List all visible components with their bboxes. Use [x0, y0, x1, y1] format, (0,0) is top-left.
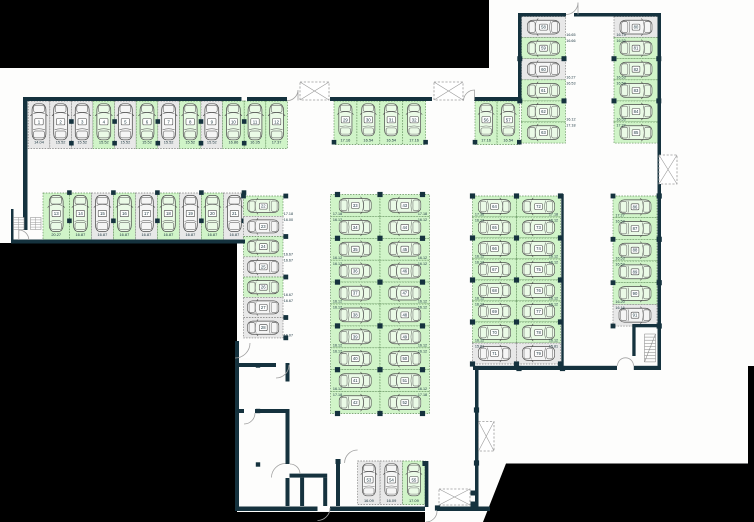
svg-text:53: 53	[366, 477, 371, 482]
svg-text:67: 67	[492, 267, 497, 272]
svg-text:16.12: 16.12	[549, 339, 558, 343]
svg-text:42: 42	[353, 400, 358, 405]
svg-text:17.27: 17.27	[615, 213, 624, 217]
svg-text:16.12: 16.12	[549, 297, 558, 301]
svg-text:64: 64	[492, 204, 497, 209]
svg-text:38: 38	[353, 312, 358, 317]
svg-text:19: 19	[188, 211, 193, 216]
svg-text:87: 87	[633, 226, 638, 231]
svg-text:16.12: 16.12	[418, 262, 427, 266]
svg-text:16.12: 16.12	[475, 261, 484, 265]
svg-text:17.18: 17.18	[333, 212, 342, 216]
svg-text:16.12: 16.12	[418, 306, 427, 310]
svg-text:16.00: 16.00	[284, 218, 293, 222]
svg-text:16.67: 16.67	[284, 299, 293, 303]
svg-text:91: 91	[633, 313, 638, 318]
svg-text:16.12: 16.12	[333, 306, 342, 310]
svg-text:40: 40	[353, 356, 358, 361]
svg-text:15.81: 15.81	[475, 345, 484, 349]
svg-text:13: 13	[54, 211, 59, 216]
svg-text:47: 47	[402, 291, 407, 296]
svg-text:17.37: 17.37	[272, 140, 282, 145]
svg-text:49: 49	[402, 334, 407, 339]
svg-text:16.12: 16.12	[418, 343, 427, 347]
svg-text:14.04: 14.04	[34, 140, 45, 145]
svg-text:89: 89	[633, 269, 638, 274]
svg-text:57: 57	[506, 117, 511, 122]
svg-text:16.12: 16.12	[333, 262, 342, 266]
svg-text:33: 33	[353, 203, 358, 208]
svg-text:16.53: 16.53	[616, 75, 625, 79]
svg-text:17: 17	[144, 211, 149, 216]
svg-text:29: 29	[343, 117, 348, 122]
svg-text:16.54: 16.54	[363, 138, 374, 143]
svg-text:16.27: 16.27	[566, 75, 575, 79]
svg-text:61: 61	[541, 88, 546, 93]
svg-text:17.18: 17.18	[284, 212, 293, 216]
svg-text:16.53: 16.53	[615, 219, 624, 223]
svg-text:16.53: 16.53	[616, 39, 625, 43]
svg-text:43: 43	[402, 203, 407, 208]
svg-text:78: 78	[536, 330, 541, 335]
svg-text:16.67: 16.67	[284, 252, 293, 256]
svg-text:34: 34	[353, 225, 358, 230]
svg-text:17.18: 17.18	[333, 393, 342, 397]
svg-text:16.53: 16.53	[616, 81, 625, 85]
svg-text:55: 55	[411, 477, 416, 482]
svg-text:16.12: 16.12	[549, 261, 558, 265]
svg-text:16.67: 16.67	[284, 293, 293, 297]
svg-text:90: 90	[633, 291, 638, 296]
svg-text:85: 85	[634, 130, 639, 135]
svg-text:16: 16	[122, 211, 127, 216]
svg-text:17.18: 17.18	[566, 124, 575, 128]
svg-text:51: 51	[402, 378, 407, 383]
svg-text:88: 88	[633, 248, 638, 253]
svg-text:16.53: 16.53	[616, 118, 625, 122]
svg-text:16.12: 16.12	[475, 255, 484, 259]
svg-text:70: 70	[492, 330, 497, 335]
svg-text:15.52: 15.52	[207, 140, 217, 145]
svg-text:14: 14	[78, 211, 83, 216]
svg-text:16.12: 16.12	[333, 218, 342, 222]
svg-text:15.52: 15.52	[121, 140, 131, 145]
svg-text:16.12: 16.12	[475, 339, 484, 343]
svg-text:16.09: 16.09	[364, 498, 374, 503]
svg-text:54: 54	[389, 477, 394, 482]
svg-text:81: 81	[634, 46, 639, 51]
svg-text:16.87: 16.87	[208, 232, 218, 237]
svg-text:31: 31	[389, 117, 394, 122]
svg-text:16.12: 16.12	[475, 219, 484, 223]
svg-text:72: 72	[536, 204, 541, 209]
svg-text:50: 50	[402, 356, 407, 361]
svg-text:17.18: 17.18	[418, 212, 427, 216]
svg-text:48: 48	[402, 312, 407, 317]
svg-text:16.12: 16.12	[418, 256, 427, 260]
svg-text:16.12: 16.12	[549, 219, 558, 223]
svg-text:56: 56	[484, 117, 489, 122]
svg-text:15.52: 15.52	[142, 140, 152, 145]
svg-text:11: 11	[253, 119, 258, 124]
svg-text:16.87: 16.87	[120, 232, 130, 237]
svg-text:62: 62	[541, 109, 546, 114]
svg-text:79: 79	[536, 351, 541, 356]
svg-text:86: 86	[633, 204, 638, 209]
svg-text:16.54: 16.54	[386, 138, 397, 143]
svg-text:44: 44	[402, 225, 407, 230]
svg-text:36: 36	[353, 269, 358, 274]
svg-text:84: 84	[634, 109, 639, 114]
svg-text:16.66: 16.66	[566, 39, 575, 43]
svg-text:16.87: 16.87	[142, 232, 152, 237]
svg-text:16.12: 16.12	[333, 343, 342, 347]
svg-text:65: 65	[492, 225, 497, 230]
svg-text:83: 83	[634, 88, 639, 93]
svg-text:16.12: 16.12	[333, 387, 342, 391]
svg-text:35: 35	[353, 247, 358, 252]
svg-text:17.16: 17.16	[341, 138, 351, 143]
svg-text:66: 66	[492, 246, 497, 251]
svg-text:16.75: 16.75	[616, 33, 625, 37]
svg-text:18: 18	[166, 211, 171, 216]
svg-text:30: 30	[366, 117, 371, 122]
svg-text:15.52: 15.52	[99, 140, 109, 145]
svg-text:60: 60	[541, 67, 546, 72]
svg-text:15: 15	[100, 211, 105, 216]
svg-text:39: 39	[353, 334, 358, 339]
svg-text:16.12: 16.12	[418, 218, 427, 222]
svg-text:20.27: 20.27	[51, 232, 61, 237]
svg-text:59: 59	[541, 46, 546, 51]
svg-text:17.36: 17.36	[475, 213, 484, 217]
svg-text:25: 25	[261, 264, 266, 269]
svg-text:16.67: 16.67	[284, 258, 293, 262]
svg-text:17.09: 17.09	[409, 498, 419, 503]
svg-text:16.87: 16.87	[98, 232, 108, 237]
svg-text:17.18: 17.18	[549, 213, 558, 217]
svg-text:15.52: 15.52	[185, 140, 195, 145]
svg-text:15.52: 15.52	[164, 140, 174, 145]
svg-text:27: 27	[261, 305, 266, 310]
svg-text:46: 46	[402, 269, 407, 274]
svg-text:80: 80	[634, 25, 639, 30]
svg-text:17.18: 17.18	[418, 393, 427, 397]
svg-text:16.87: 16.87	[230, 232, 240, 237]
svg-text:16.12: 16.12	[333, 349, 342, 353]
svg-text:16.12: 16.12	[333, 300, 342, 304]
svg-text:82: 82	[634, 67, 639, 72]
svg-text:16.53: 16.53	[615, 263, 624, 267]
svg-text:16.65: 16.65	[566, 33, 575, 37]
svg-text:16.53: 16.53	[566, 81, 575, 85]
svg-text:76: 76	[536, 288, 541, 293]
svg-text:15.52: 15.52	[77, 140, 87, 145]
svg-text:16.12: 16.12	[418, 387, 427, 391]
svg-text:17.27: 17.27	[616, 124, 625, 128]
svg-text:15.52: 15.52	[56, 140, 66, 145]
svg-text:32: 32	[412, 117, 417, 122]
svg-text:16.12: 16.12	[549, 255, 558, 259]
svg-text:15.81: 15.81	[549, 345, 558, 349]
svg-text:17.16: 17.16	[409, 138, 419, 143]
svg-text:77: 77	[536, 309, 541, 314]
svg-text:16.12: 16.12	[333, 256, 342, 260]
svg-text:16.86: 16.86	[229, 140, 239, 145]
svg-text:74: 74	[536, 246, 541, 251]
svg-text:16.53: 16.53	[615, 257, 624, 261]
svg-text:45: 45	[402, 247, 407, 252]
svg-text:41: 41	[353, 378, 358, 383]
svg-text:20: 20	[210, 211, 215, 216]
svg-text:16.87: 16.87	[76, 232, 86, 237]
svg-text:16.54: 16.54	[503, 138, 514, 143]
svg-text:75: 75	[536, 267, 541, 272]
svg-text:16.12: 16.12	[475, 303, 484, 307]
svg-text:12: 12	[274, 119, 279, 124]
svg-text:10: 10	[231, 119, 236, 124]
svg-text:16.12: 16.12	[418, 349, 427, 353]
svg-text:71: 71	[492, 351, 497, 356]
svg-text:16.35: 16.35	[250, 140, 260, 145]
svg-text:16.12: 16.12	[418, 300, 427, 304]
svg-text:16.09: 16.09	[387, 498, 397, 503]
svg-text:52: 52	[402, 400, 407, 405]
svg-text:73: 73	[536, 225, 541, 230]
svg-text:28: 28	[261, 325, 266, 330]
svg-text:23: 23	[261, 224, 266, 229]
svg-text:69: 69	[492, 309, 497, 314]
svg-text:16.12: 16.12	[549, 303, 558, 307]
svg-text:22: 22	[261, 204, 266, 209]
svg-text:16.12: 16.12	[566, 118, 575, 122]
svg-text:21: 21	[232, 211, 237, 216]
svg-text:37: 37	[353, 291, 358, 296]
svg-text:16.87: 16.87	[164, 232, 174, 237]
svg-text:26: 26	[261, 285, 266, 290]
svg-text:63: 63	[541, 130, 546, 135]
svg-text:68: 68	[492, 288, 497, 293]
svg-text:58: 58	[541, 25, 546, 30]
svg-text:16.12: 16.12	[475, 297, 484, 301]
svg-text:16.16: 16.16	[615, 306, 624, 310]
svg-text:16.20: 16.20	[615, 300, 624, 304]
svg-text:16.87: 16.87	[186, 232, 196, 237]
svg-text:24: 24	[261, 244, 266, 249]
svg-text:17.16: 17.16	[481, 138, 491, 143]
